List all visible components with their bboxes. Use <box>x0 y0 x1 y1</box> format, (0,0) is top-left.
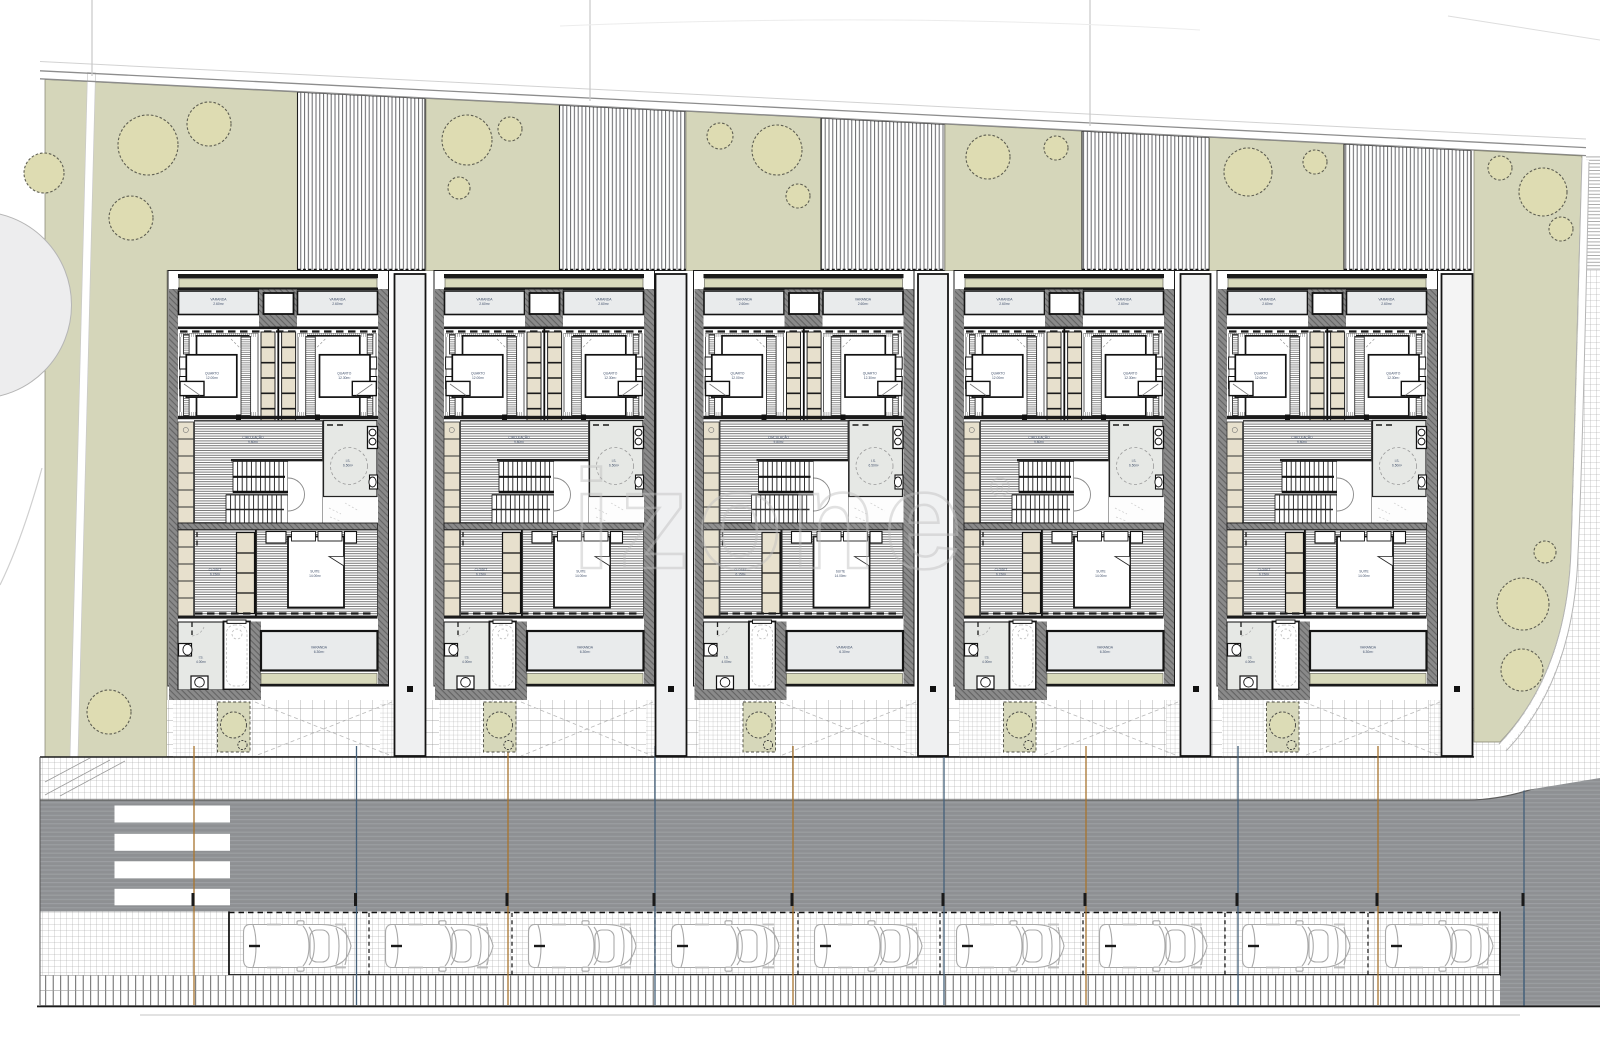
svg-text:R: R <box>996 481 1005 495</box>
svg-text:izone: izone <box>572 441 970 598</box>
